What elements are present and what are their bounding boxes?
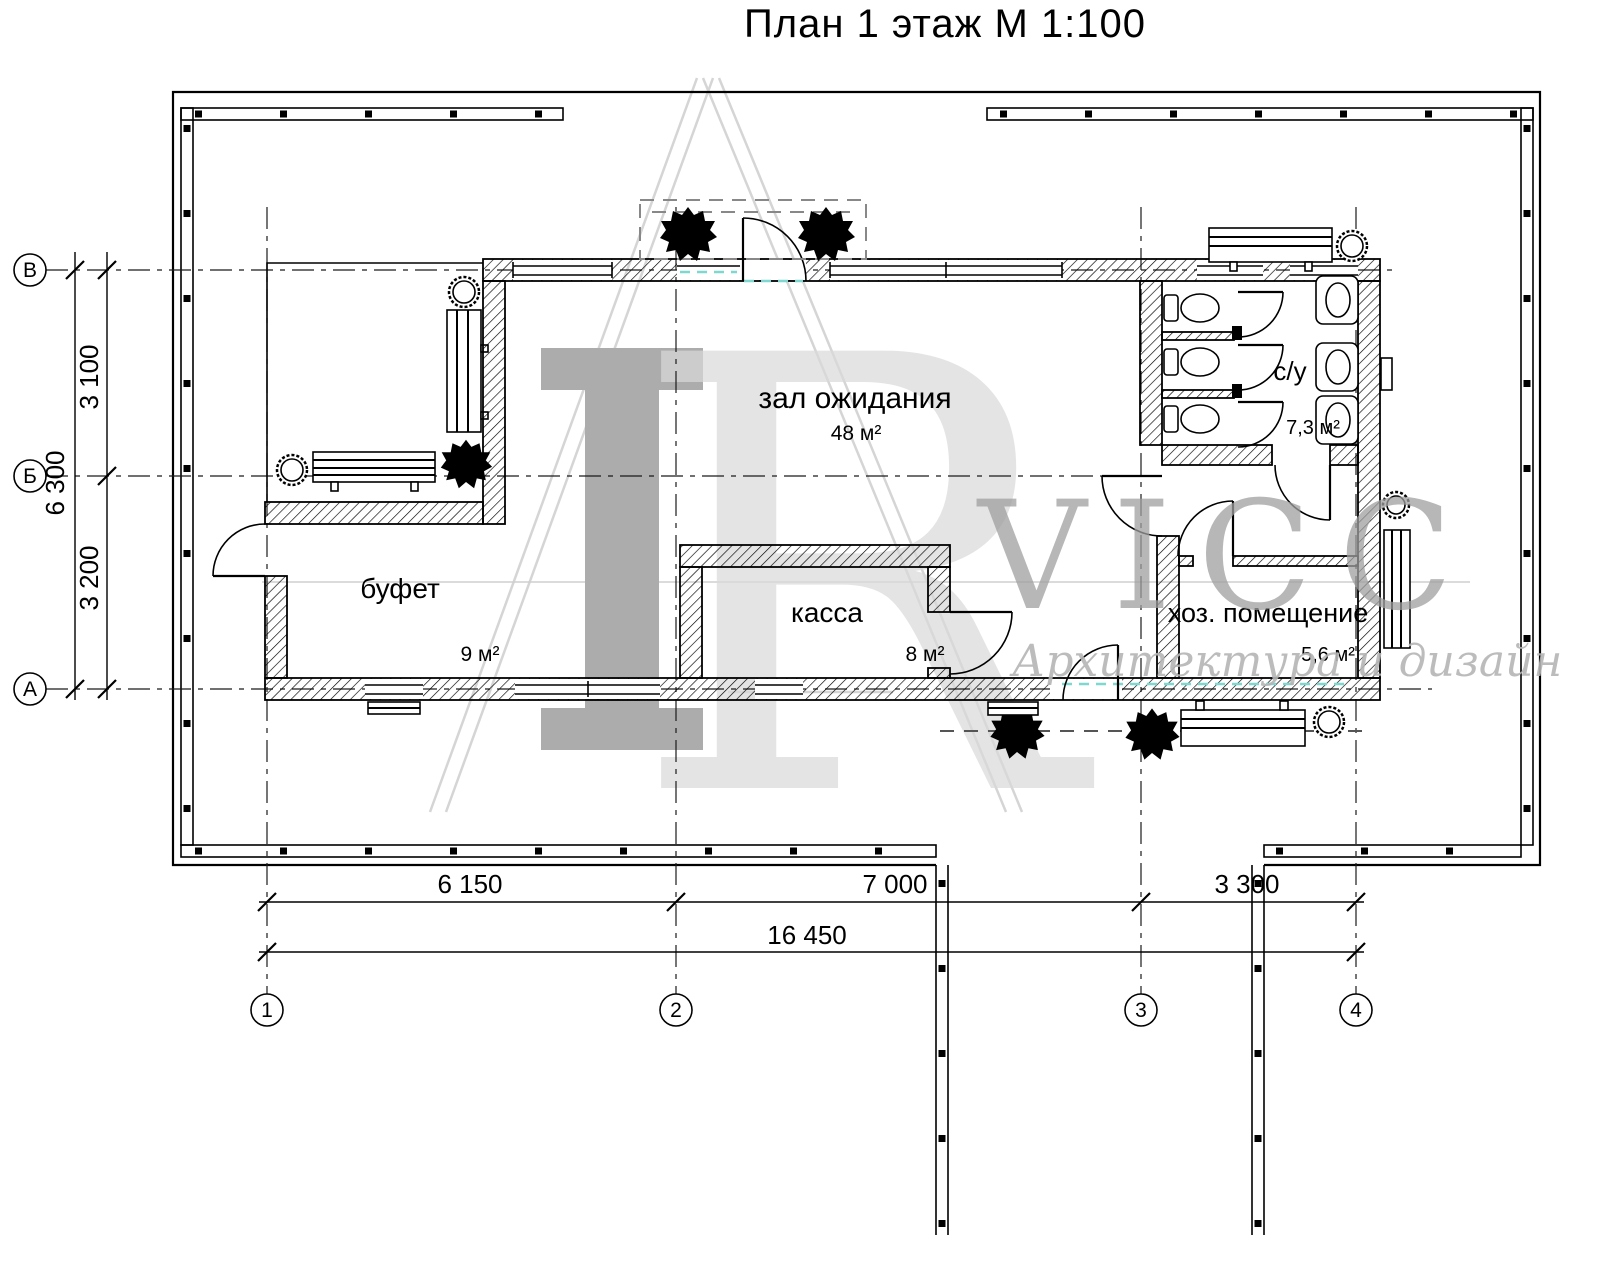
dim-3200: 3 200 (74, 545, 104, 610)
door-wc-stall (1238, 292, 1283, 337)
sink-icon (1316, 343, 1358, 391)
dim-3100: 3 100 (74, 344, 104, 409)
trash-bin-icon (449, 277, 479, 307)
room-hall-area: 48 м² (831, 422, 882, 445)
plant-icon (1125, 708, 1179, 759)
bench-south (1181, 701, 1305, 746)
watermark-brand: VICC (976, 470, 1479, 644)
toilet-icon (1164, 294, 1219, 322)
watermark-tagline: Архитектура и дизайн (1009, 636, 1562, 687)
dim-16450: 16 450 (767, 920, 847, 950)
dim-6150: 6 150 (437, 869, 502, 899)
toilet-icon (1164, 348, 1219, 376)
axis-row-a: А (23, 678, 37, 701)
trash-bin-icon (277, 455, 307, 485)
dim-3300: 3 300 (1214, 869, 1279, 899)
room-buffet-label: буфет (360, 573, 440, 604)
toilet-icon (1164, 405, 1219, 433)
room-buffet-area: 9 м² (461, 643, 500, 666)
sink-icon (1316, 276, 1358, 324)
trash-bin-icon (1314, 707, 1344, 737)
bench (313, 452, 435, 491)
door-wc-stall (1238, 402, 1283, 447)
toilets (1164, 294, 1219, 433)
room-hall-label: зал ожидания (758, 382, 951, 415)
floor-plan-canvas: R (0, 0, 1600, 1266)
axis-col-2: 2 (670, 999, 682, 1022)
door-buffet (213, 524, 265, 576)
axis-col-1: 1 (261, 999, 273, 1022)
axis-col-4: 4 (1350, 999, 1362, 1022)
axis-col-3: 3 (1135, 999, 1147, 1022)
trash-bin-icon (1337, 231, 1367, 261)
room-wc-area: 7,3 м² (1286, 417, 1340, 439)
room-cashier-area: 8 м² (906, 643, 945, 666)
dim-7000: 7 000 (862, 869, 927, 899)
bench-vertical (447, 310, 488, 432)
axis-row-v: В (23, 259, 37, 282)
watermark-brand-text: VICC (976, 470, 1479, 644)
porch (267, 263, 492, 502)
room-wc-label: с/у (1273, 356, 1306, 386)
axis-row-b: Б (23, 465, 37, 488)
watermark-tagline-text: Архитектура и дизайн (1009, 636, 1562, 687)
room-cashier-label: касса (791, 597, 863, 628)
